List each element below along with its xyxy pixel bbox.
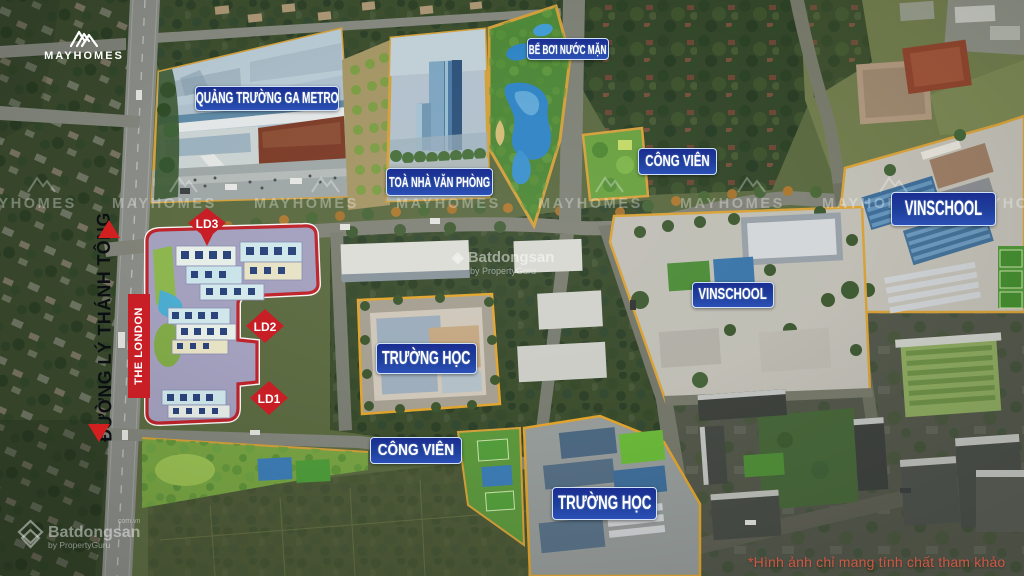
svg-text:LD2: LD2 [254,320,277,334]
svg-text:LD1: LD1 [258,392,281,406]
svg-text:LD3: LD3 [196,217,219,231]
